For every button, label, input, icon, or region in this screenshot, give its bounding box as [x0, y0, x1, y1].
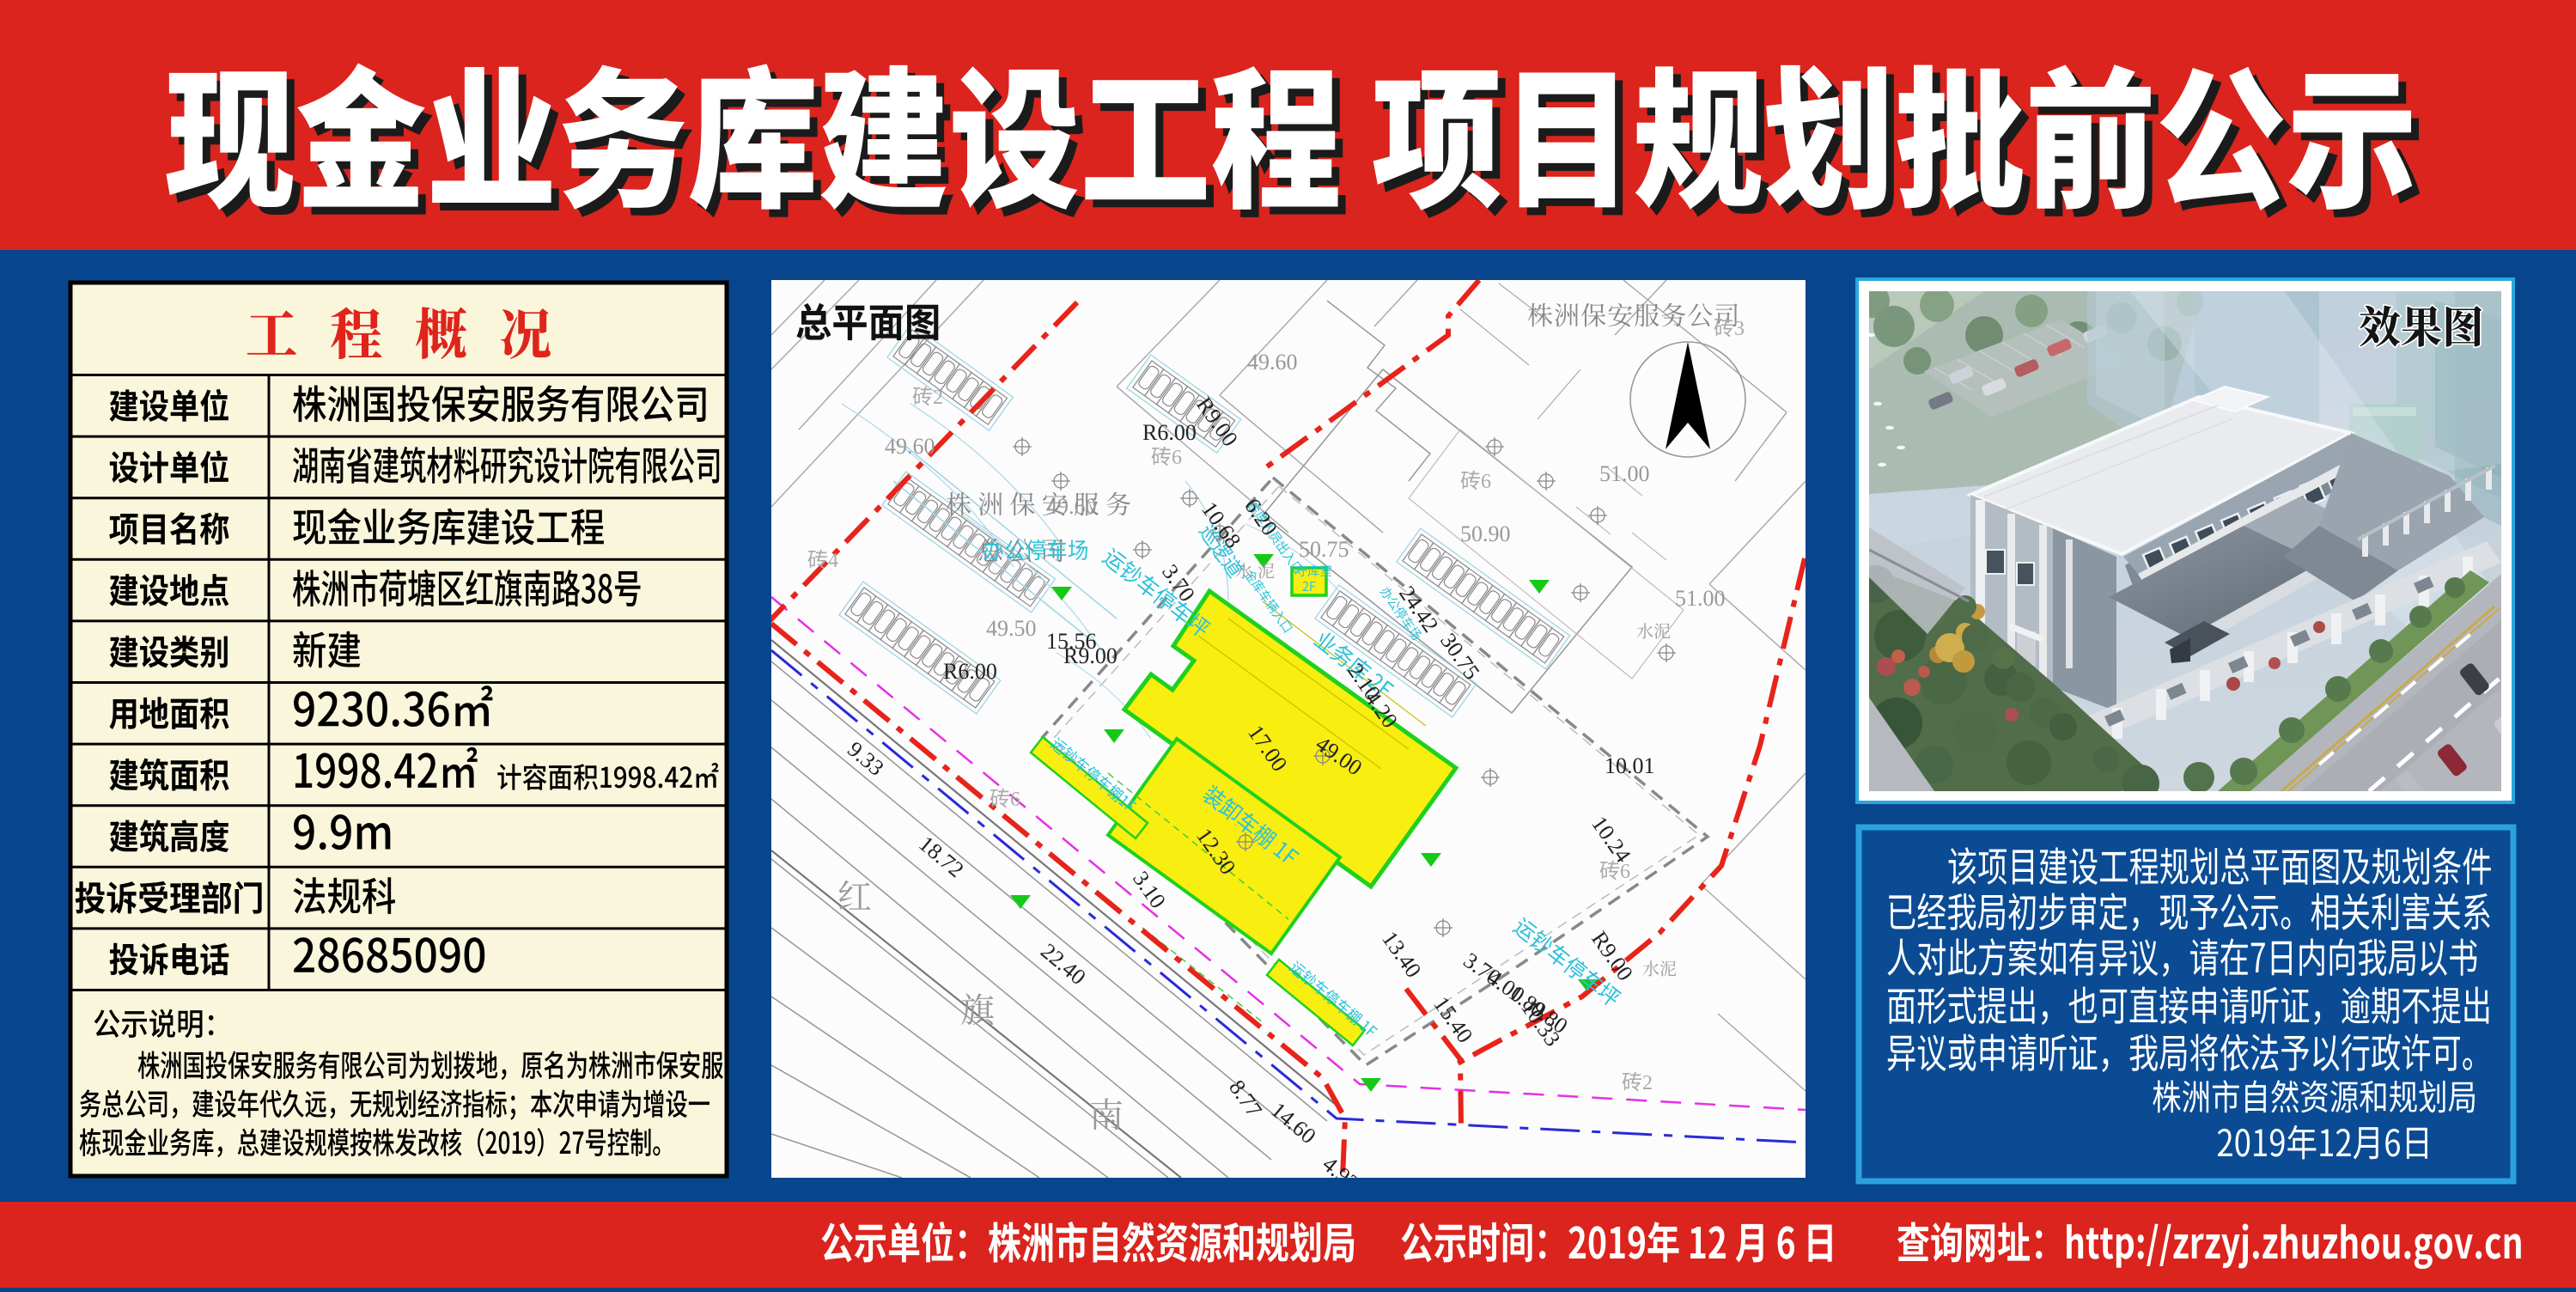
svg-text:砖6: 砖6 — [990, 788, 1020, 811]
svg-text:51.00: 51.00 — [1675, 586, 1726, 611]
svg-text:49.60: 49.60 — [1247, 350, 1298, 375]
svg-text:砖3: 砖3 — [1714, 317, 1745, 340]
svg-text:50.75: 50.75 — [1299, 537, 1349, 562]
svg-text:49.50: 49.50 — [986, 616, 1037, 641]
svg-text:砖6: 砖6 — [1151, 446, 1182, 469]
svg-text:10.01: 10.01 — [1605, 753, 1655, 778]
svg-text:R6.00: R6.00 — [1142, 420, 1197, 445]
svg-text:49.60: 49.60 — [885, 434, 935, 459]
svg-text:砖4: 砖4 — [807, 549, 838, 572]
svg-text:砖6: 砖6 — [1599, 860, 1630, 883]
svg-text:49.60: 49.60 — [1046, 494, 1097, 519]
svg-text:R6.00: R6.00 — [943, 659, 997, 684]
svg-text:砖2: 砖2 — [1622, 1071, 1653, 1094]
svg-text:51.00: 51.00 — [1599, 461, 1650, 486]
svg-text:R9.00: R9.00 — [1063, 643, 1117, 668]
svg-text:50.90: 50.90 — [1460, 521, 1511, 546]
svg-text:砖2: 砖2 — [912, 386, 943, 409]
svg-text:砖6: 砖6 — [1460, 470, 1491, 493]
